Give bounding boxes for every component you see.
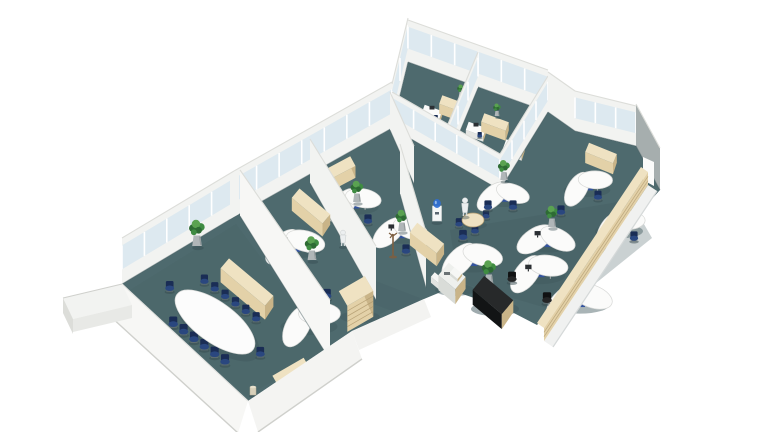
cooler-tap [435,212,439,215]
floorplan-canvas: 3D isometric rendering of an office floo… [0,0,768,432]
body [340,235,346,243]
wall-pillar [230,170,239,219]
computer-monitor [535,231,541,235]
leaves [307,236,315,244]
leaves [547,214,552,219]
leaves [484,260,492,268]
leaves [494,108,497,111]
office-chair [220,290,230,302]
office-chair [165,281,175,294]
office-chair [231,297,241,309]
office-chair [593,191,602,203]
leaves [352,189,357,194]
office-chair [363,214,373,226]
leaves [495,104,499,108]
office-chair [251,312,261,324]
computer-monitor [388,224,394,228]
leaves [500,160,506,166]
office-chair [483,200,493,212]
leaves [459,85,463,89]
head [341,230,346,235]
office-chair [556,205,566,217]
leaves [458,89,461,92]
computer-monitor [525,265,531,270]
office-chair [210,282,220,294]
office-chair [477,132,483,139]
leaves [398,210,405,217]
body [462,203,469,212]
office-chair [255,347,265,360]
office-floorplan-render: 3D isometric rendering of an office floo… [0,0,768,432]
computer-monitor [430,106,435,110]
head [462,198,468,204]
office-chair [401,244,411,256]
leaves [548,206,555,213]
leaves [306,245,311,250]
office-chair [200,275,210,287]
leaves [191,229,197,235]
leaves [192,220,200,228]
office-chair [458,230,468,243]
office-chair [178,324,189,338]
office-chair [508,200,518,212]
office-chair [241,305,251,317]
leaves [397,218,402,223]
leaves [483,269,488,274]
office-chair [507,272,518,285]
leaves [499,167,503,171]
leaves [353,181,360,188]
office-chair [220,354,231,368]
bin-body [250,387,256,395]
office-chair [629,231,639,243]
computer-monitor [474,123,479,127]
office-chair [209,347,220,361]
control-panel [444,272,450,275]
